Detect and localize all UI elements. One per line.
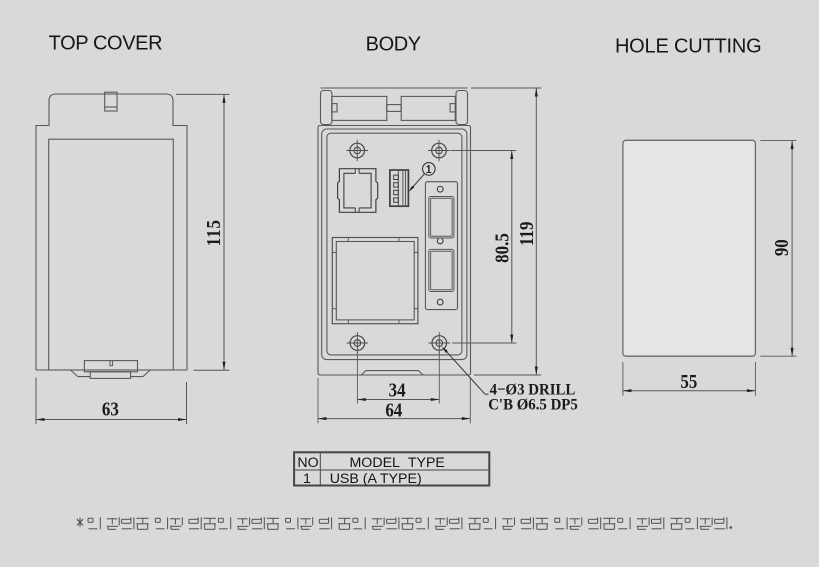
svg-text:119: 119	[516, 222, 537, 247]
svg-text:34: 34	[389, 379, 406, 400]
svg-text:BODY: BODY	[366, 33, 421, 55]
svg-text:C'B Ø6.5 DP5: C'B Ø6.5 DP5	[488, 396, 578, 414]
svg-text:NO: NO	[297, 455, 318, 471]
svg-text:1: 1	[303, 471, 311, 487]
svg-text:115: 115	[203, 219, 224, 246]
svg-text:64: 64	[385, 399, 402, 420]
svg-text:HOLE CUTTING: HOLE CUTTING	[615, 35, 762, 57]
svg-text:MODEL TYPE: MODEL TYPE	[349, 455, 444, 471]
svg-text:55: 55	[680, 371, 697, 392]
svg-text:90: 90	[771, 239, 792, 256]
svg-text:80.5: 80.5	[491, 233, 512, 263]
svg-text:USB (A TYPE): USB (A TYPE)	[330, 471, 422, 487]
svg-text:TOP COVER: TOP COVER	[49, 32, 162, 54]
svg-text:63: 63	[102, 399, 119, 420]
